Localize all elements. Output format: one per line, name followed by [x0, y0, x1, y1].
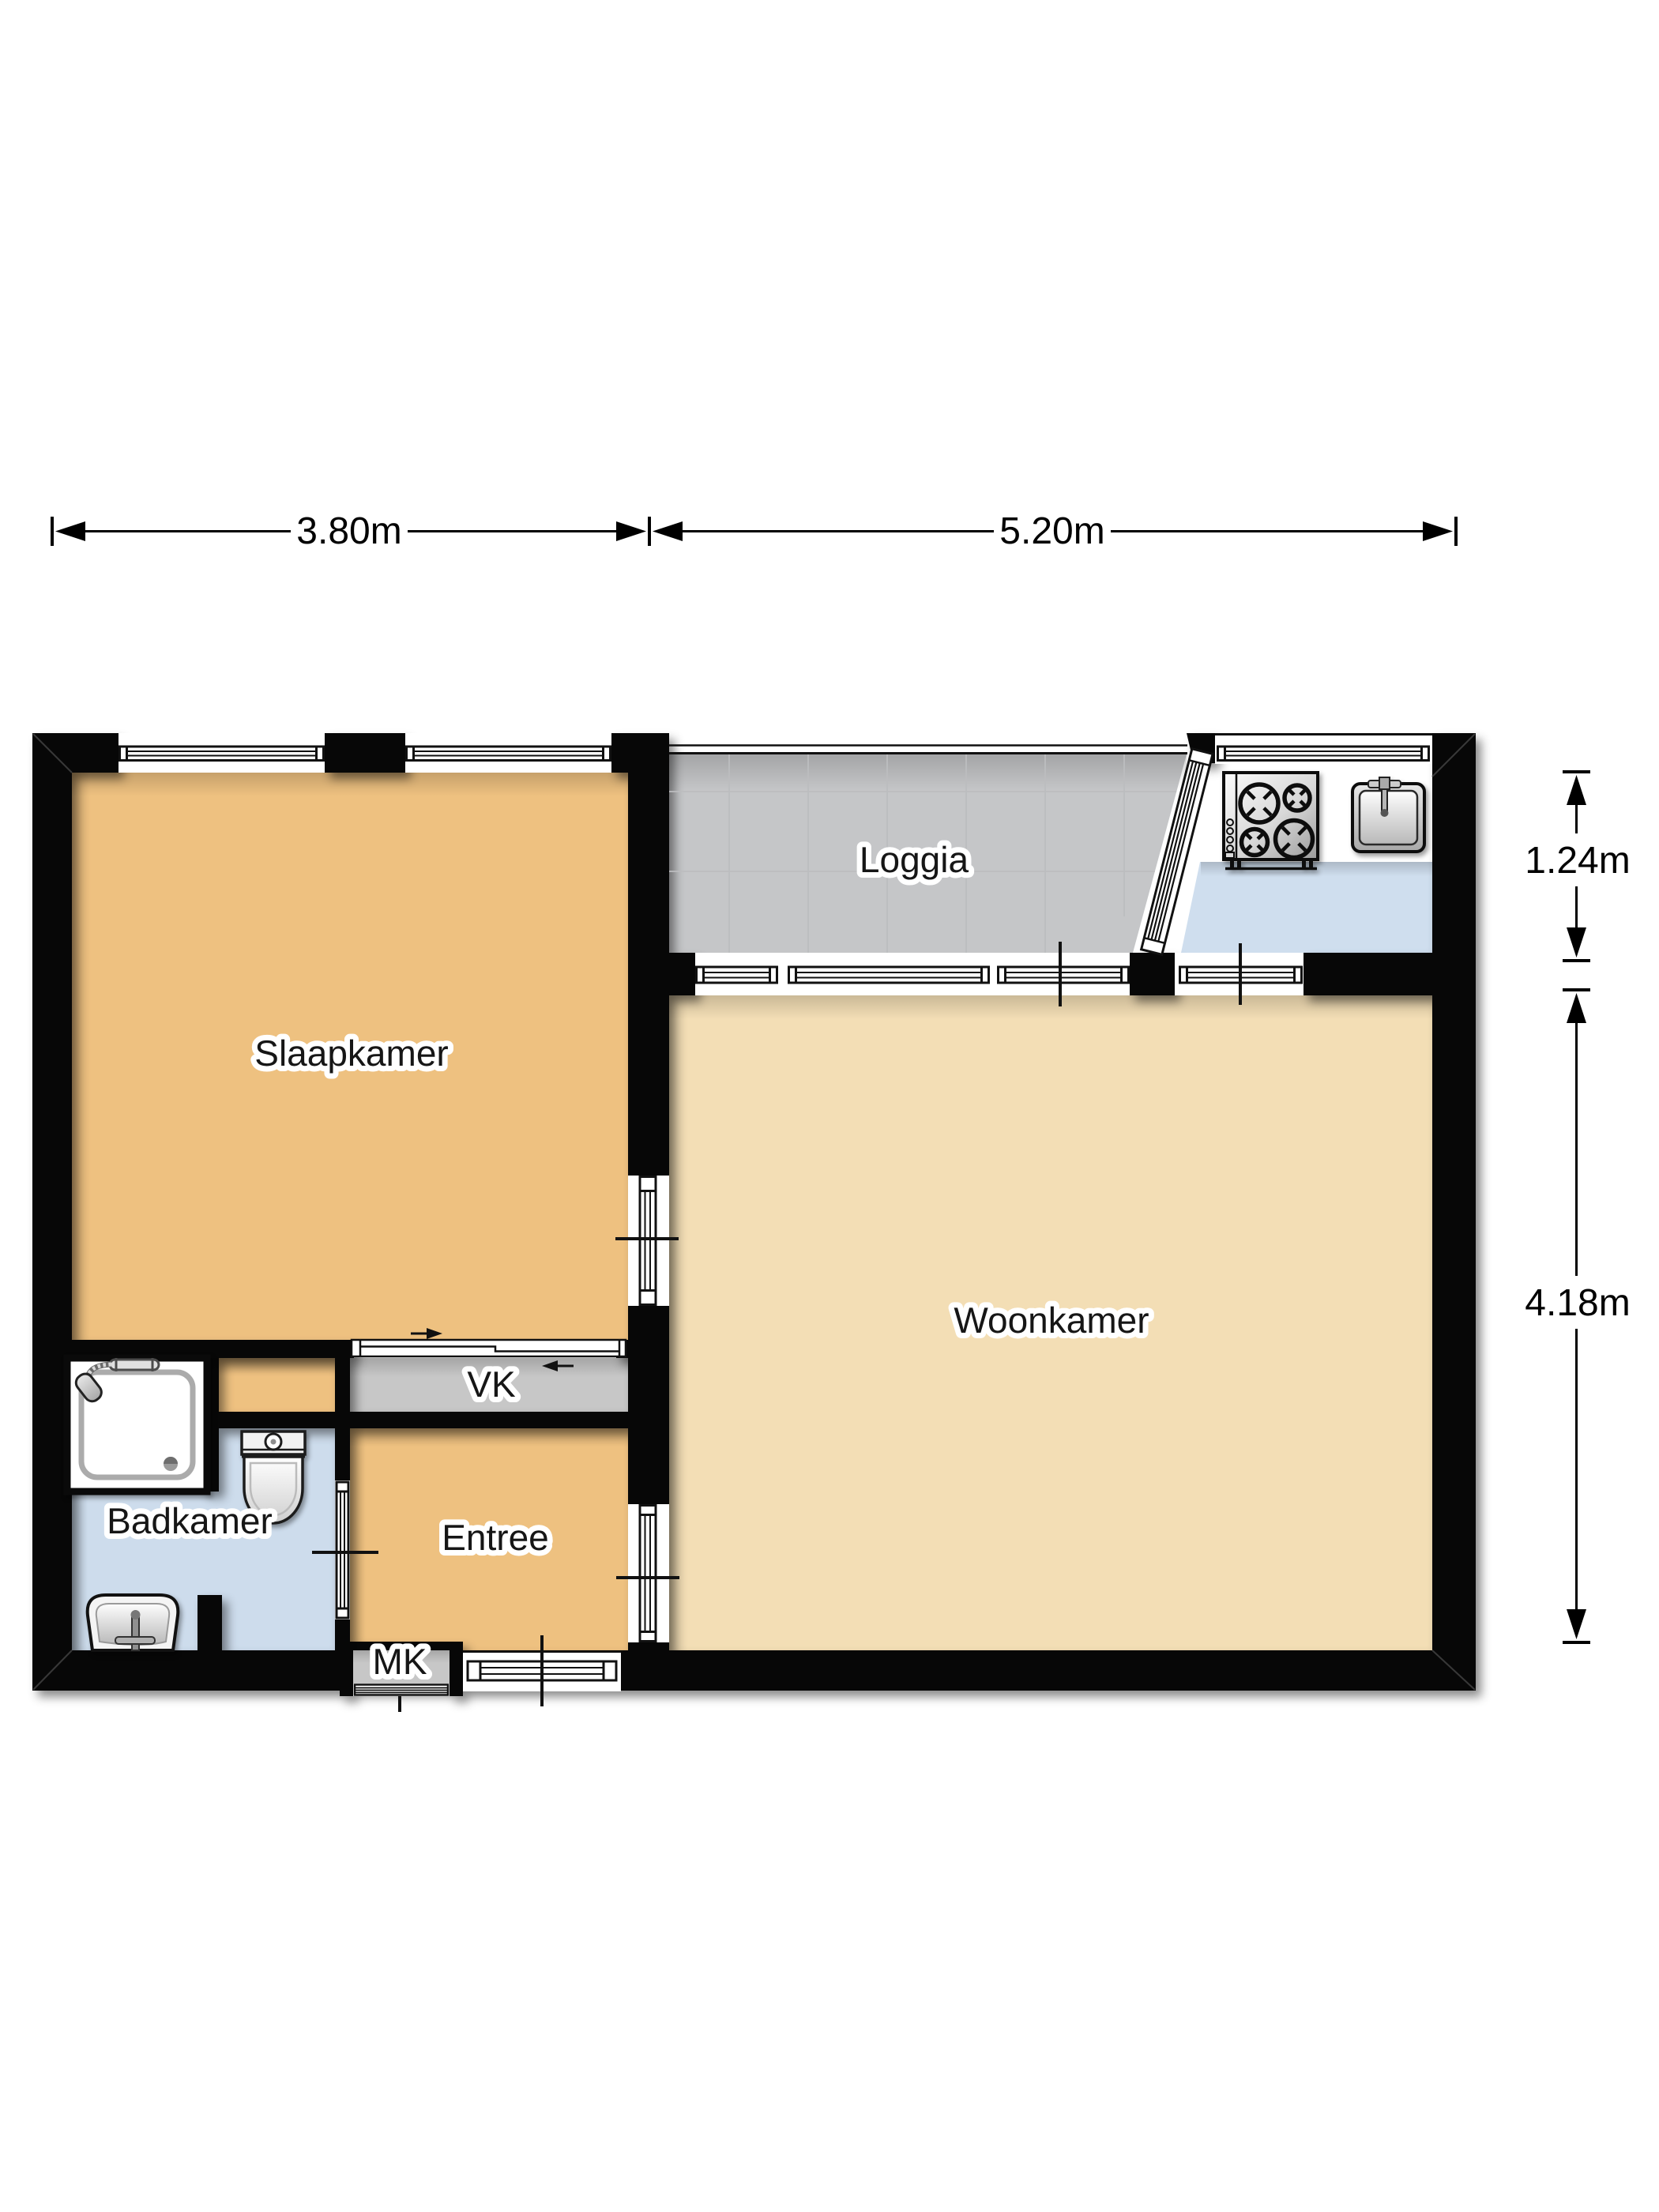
svg-text:3.80m: 3.80m	[296, 510, 401, 552]
svg-text:Loggia: Loggia	[860, 839, 969, 880]
svg-text:1.24m: 1.24m	[1525, 840, 1630, 882]
svg-text:4.18m: 4.18m	[1525, 1282, 1630, 1324]
svg-text:Woonkamer: Woonkamer	[954, 1300, 1149, 1341]
svg-text:MK: MK	[373, 1641, 427, 1682]
svg-text:Entree: Entree	[442, 1517, 549, 1558]
svg-text:Slaapkamer: Slaapkamer	[254, 1033, 448, 1074]
svg-text:Badkamer: Badkamer	[107, 1500, 273, 1541]
svg-text:VK: VK	[467, 1364, 516, 1405]
svg-text:5.20m: 5.20m	[999, 510, 1104, 552]
